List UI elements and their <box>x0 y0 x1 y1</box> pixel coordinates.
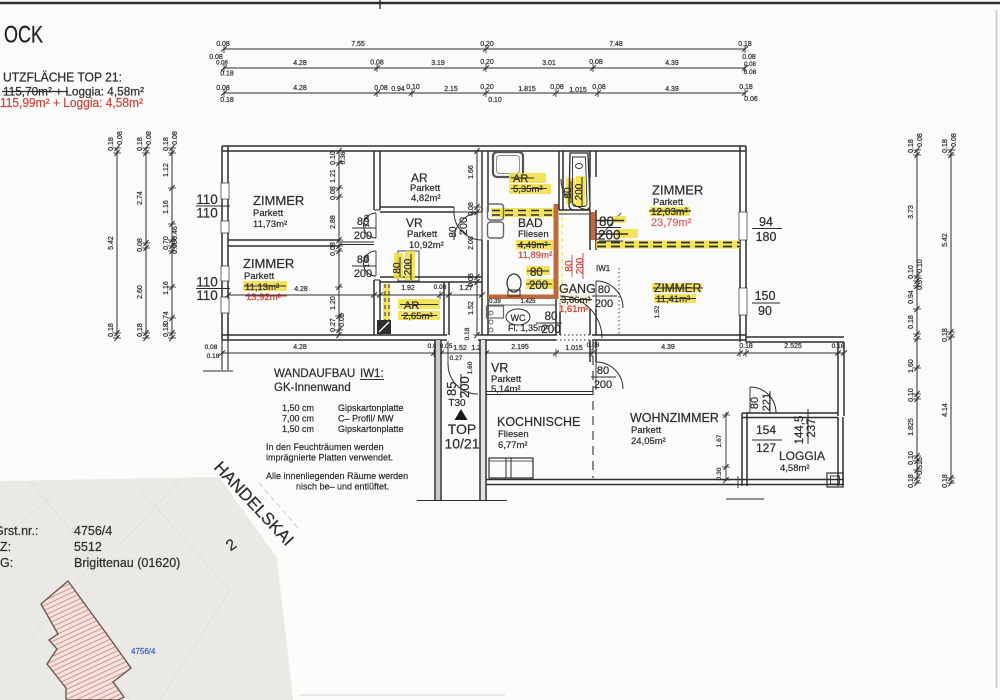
svg-text:0.08: 0.08 <box>550 84 564 91</box>
svg-text:6,77m²: 6,77m² <box>498 440 528 451</box>
svg-text:11,89m²: 11,89m² <box>518 250 552 261</box>
svg-text:In den Feuchträumen werden: In den Feuchträumen werden <box>266 442 384 452</box>
svg-text:0.18: 0.18 <box>942 139 949 153</box>
svg-text:0.08: 0.08 <box>744 69 757 76</box>
svg-text:221: 221 <box>761 393 773 411</box>
svg-text:1.015: 1.015 <box>569 87 587 94</box>
svg-text:0.08: 0.08 <box>370 60 384 67</box>
svg-text:0.08: 0.08 <box>374 85 388 92</box>
svg-text:5.42: 5.42 <box>108 236 115 250</box>
svg-text:3.19: 3.19 <box>431 60 445 67</box>
svg-text:Gipskartonplatte: Gipskartonplatte <box>338 424 404 434</box>
svg-text:0.94: 0.94 <box>391 86 405 93</box>
svg-text:0.70: 0.70 <box>163 236 170 250</box>
svg-text:0.57: 0.57 <box>917 276 924 290</box>
svg-text:80: 80 <box>564 260 575 272</box>
svg-text:0.18: 0.18 <box>220 71 234 78</box>
svg-text:0.08: 0.08 <box>330 242 337 256</box>
svg-text:144,5: 144,5 <box>794 416 806 445</box>
svg-text:0.08: 0.08 <box>742 54 756 61</box>
svg-text:0.10: 0.10 <box>908 388 915 402</box>
svg-text:1,61m²: 1,61m² <box>559 304 589 315</box>
svg-text:7,00 cm: 7,00 cm <box>282 414 314 424</box>
svg-text:1.20: 1.20 <box>330 296 337 310</box>
svg-text:0.10: 0.10 <box>406 84 420 91</box>
svg-text:80: 80 <box>530 267 543 279</box>
svg-text:200: 200 <box>458 217 470 235</box>
svg-text:0.46: 0.46 <box>172 226 179 240</box>
svg-text:5.42: 5.42 <box>942 233 949 247</box>
svg-text:150: 150 <box>755 289 776 303</box>
svg-text:Fliesen: Fliesen <box>498 429 529 440</box>
svg-text:0.08: 0.08 <box>216 41 230 48</box>
svg-text:0.18: 0.18 <box>739 84 753 91</box>
svg-text:3.73: 3.73 <box>908 205 915 219</box>
svg-text:Gipskartonplatte: Gipskartonplatte <box>338 403 404 413</box>
svg-text:UTZFLÄCHE TOP 21:: UTZFLÄCHE TOP 21: <box>3 71 122 85</box>
svg-text:1.16: 1.16 <box>163 200 170 214</box>
svg-text:237: 237 <box>806 418 818 437</box>
svg-text:0.18: 0.18 <box>137 323 144 337</box>
svg-text:200: 200 <box>354 230 372 242</box>
svg-text:0.20: 0.20 <box>480 41 494 48</box>
svg-text:G:: G: <box>0 556 13 570</box>
svg-text:1,50 cm: 1,50 cm <box>282 403 314 413</box>
svg-text:0.08: 0.08 <box>434 284 447 291</box>
svg-text:C– Profil/ MW: C– Profil/ MW <box>338 414 394 424</box>
svg-text:200: 200 <box>594 379 612 391</box>
svg-text:1,50 cm: 1,50 cm <box>282 424 314 434</box>
svg-text:4,82m²: 4,82m² <box>411 193 441 204</box>
svg-text:0.08: 0.08 <box>468 273 475 287</box>
svg-text:0.27: 0.27 <box>450 355 463 362</box>
svg-text:0.18: 0.18 <box>738 41 752 48</box>
svg-text:0.18: 0.18 <box>908 474 915 488</box>
svg-text:0.08: 0.08 <box>744 62 756 68</box>
svg-text:1.60: 1.60 <box>364 254 371 267</box>
svg-text:1.21: 1.21 <box>330 169 337 183</box>
svg-text:0.08: 0.08 <box>951 133 958 147</box>
svg-text:24,05m²: 24,05m² <box>631 436 666 447</box>
svg-text:154: 154 <box>756 423 776 437</box>
svg-text:0.515: 0.515 <box>917 457 924 475</box>
svg-text:80: 80 <box>597 365 609 377</box>
svg-text:10/21: 10/21 <box>444 436 479 452</box>
svg-text:1.92: 1.92 <box>401 285 415 292</box>
svg-text:200: 200 <box>574 183 585 200</box>
svg-text:0.30: 0.30 <box>716 467 723 480</box>
svg-text:ZIMMER: ZIMMER <box>253 193 304 208</box>
svg-text:1.52: 1.52 <box>468 301 475 315</box>
svg-text:3.01: 3.01 <box>542 60 556 67</box>
svg-text:0.18: 0.18 <box>137 137 144 151</box>
svg-text:1.67: 1.67 <box>716 434 723 447</box>
svg-text:0.06: 0.06 <box>744 96 758 103</box>
svg-text:WOHNZIMMER: WOHNZIMMER <box>630 411 719 425</box>
svg-text:Brigittenau (01620): Brigittenau (01620) <box>74 556 180 570</box>
svg-text:0.08: 0.08 <box>216 61 228 67</box>
svg-text:0.18: 0.18 <box>163 323 170 337</box>
svg-text:0.08: 0.08 <box>137 238 144 252</box>
svg-text:11,73m²: 11,73m² <box>253 219 287 230</box>
svg-text:2.195: 2.195 <box>511 344 529 351</box>
svg-text:0.08: 0.08 <box>172 240 179 254</box>
svg-text:1.52: 1.52 <box>654 305 661 318</box>
svg-text:WC: WC <box>511 313 526 323</box>
svg-text:2.60: 2.60 <box>137 285 144 299</box>
svg-text:200: 200 <box>354 268 372 280</box>
svg-text:0.08: 0.08 <box>146 131 153 145</box>
svg-text:4.28: 4.28 <box>294 286 308 293</box>
svg-text:IW1: IW1 <box>596 264 611 273</box>
svg-text:4,58m²: 4,58m² <box>780 463 810 474</box>
svg-text:80: 80 <box>545 311 558 323</box>
svg-text:0.18: 0.18 <box>942 328 949 342</box>
svg-text:Z:: Z: <box>0 540 11 554</box>
svg-text:BAD: BAD <box>518 216 543 230</box>
svg-text:LOGGIA: LOGGIA <box>779 449 825 463</box>
svg-text:4.39: 4.39 <box>665 86 679 93</box>
svg-text:200: 200 <box>575 257 586 274</box>
svg-text:VR: VR <box>491 361 508 375</box>
svg-text:1.60: 1.60 <box>467 361 474 374</box>
svg-text:200: 200 <box>595 298 613 310</box>
svg-text:1.425: 1.425 <box>520 299 536 305</box>
svg-text:Parkett: Parkett <box>631 425 661 436</box>
svg-text:11,41m²: 11,41m² <box>656 294 690 305</box>
svg-text:1.00: 1.00 <box>364 214 371 227</box>
svg-text:0.74: 0.74 <box>163 311 170 325</box>
svg-text:0.20: 0.20 <box>480 59 494 66</box>
svg-text:5,35m²: 5,35m² <box>513 184 543 195</box>
svg-text:0.18: 0.18 <box>942 474 949 488</box>
svg-text:0.08: 0.08 <box>330 186 337 200</box>
svg-text:0.18: 0.18 <box>108 323 115 337</box>
svg-text:0.10: 0.10 <box>917 259 924 273</box>
svg-text:1.16: 1.16 <box>163 281 170 295</box>
svg-text:VR: VR <box>406 216 423 230</box>
svg-text:200: 200 <box>598 228 621 243</box>
svg-text:1.825: 1.825 <box>908 418 915 436</box>
svg-text:200: 200 <box>403 258 414 275</box>
svg-text:0.08: 0.08 <box>216 85 230 92</box>
svg-text:0.18: 0.18 <box>908 139 915 153</box>
svg-text:1.015: 1.015 <box>565 345 583 352</box>
svg-text:2.88: 2.88 <box>330 215 337 229</box>
svg-text:0.08: 0.08 <box>172 131 179 145</box>
svg-text:ZIMMER: ZIMMER <box>243 256 294 271</box>
svg-text:80: 80 <box>392 262 403 274</box>
svg-text:ZIMMER: ZIMMER <box>652 183 703 198</box>
svg-text:4756/4: 4756/4 <box>131 647 156 656</box>
svg-text:90: 90 <box>758 304 772 318</box>
svg-text:0.10: 0.10 <box>908 451 915 465</box>
svg-text:0.20: 0.20 <box>480 84 494 91</box>
svg-text:0.08: 0.08 <box>468 202 475 216</box>
svg-text:0.36: 0.36 <box>340 151 347 164</box>
svg-text:nisch be– und entlüftet.: nisch be– und entlüftet. <box>296 482 389 492</box>
svg-text:127: 127 <box>756 441 776 455</box>
svg-text:180: 180 <box>756 230 777 244</box>
svg-text:5512: 5512 <box>74 540 102 554</box>
svg-text:0.05: 0.05 <box>339 313 346 327</box>
svg-text:1.66: 1.66 <box>468 165 475 179</box>
svg-text:0.18: 0.18 <box>108 137 115 151</box>
svg-text:0.10: 0.10 <box>908 265 915 279</box>
svg-text:4.39: 4.39 <box>665 60 679 67</box>
svg-text:GANG: GANG <box>559 282 596 296</box>
svg-text:4.39: 4.39 <box>661 344 675 351</box>
svg-text:80: 80 <box>749 397 761 409</box>
svg-text:4.28: 4.28 <box>293 344 307 351</box>
svg-text:2.08: 2.08 <box>468 236 475 250</box>
svg-text:80: 80 <box>598 284 610 296</box>
svg-text:0.18: 0.18 <box>832 343 845 350</box>
svg-text:WANDAUFBAU: WANDAUFBAU <box>274 368 355 380</box>
svg-text:0.08: 0.08 <box>205 344 218 351</box>
svg-text:7.48: 7.48 <box>609 41 623 48</box>
svg-text:Grst.nr.:: Grst.nr.: <box>0 524 38 538</box>
svg-text:KOCHNISCHE: KOCHNISCHE <box>497 415 580 429</box>
svg-text:0.39: 0.39 <box>489 299 501 305</box>
svg-text:Parkett: Parkett <box>244 271 274 282</box>
svg-text:2.74: 2.74 <box>137 191 144 205</box>
svg-text:4.28: 4.28 <box>293 60 307 67</box>
svg-text:0.08: 0.08 <box>592 84 606 91</box>
svg-text:0.10: 0.10 <box>330 151 337 165</box>
svg-text:13,92m²: 13,92m² <box>246 292 281 303</box>
svg-text:0.18: 0.18 <box>207 353 220 360</box>
svg-text:110: 110 <box>196 206 218 221</box>
svg-text:1.60: 1.60 <box>908 359 915 373</box>
svg-text:200: 200 <box>529 280 548 292</box>
svg-text:94: 94 <box>759 215 773 229</box>
svg-text:0.18: 0.18 <box>220 97 234 104</box>
svg-text:23,79m²: 23,79m² <box>651 217 692 229</box>
svg-text:200: 200 <box>457 376 472 398</box>
svg-text:2,65m²: 2,65m² <box>403 311 433 322</box>
svg-text:Fliesen: Fliesen <box>518 229 549 240</box>
svg-text:1.12: 1.12 <box>163 163 170 177</box>
svg-text:2.525: 2.525 <box>784 343 802 350</box>
svg-text:0.08: 0.08 <box>917 133 924 147</box>
svg-text:0.18: 0.18 <box>908 315 915 329</box>
svg-text:2.15: 2.15 <box>444 86 458 93</box>
svg-text:imprägnierte Platten verwendet: imprägnierte Platten verwendet. <box>266 453 393 463</box>
svg-text:0.18: 0.18 <box>163 137 170 151</box>
svg-text:4756/4: 4756/4 <box>74 524 112 538</box>
svg-text:5,14m²: 5,14m² <box>491 384 521 395</box>
svg-text:110: 110 <box>196 288 218 303</box>
svg-text:4.14: 4.14 <box>942 403 949 417</box>
svg-text:4.28: 4.28 <box>293 85 307 92</box>
svg-text:IW1:: IW1: <box>360 368 384 380</box>
svg-text:0.10: 0.10 <box>488 97 502 104</box>
svg-text:OCK: OCK <box>4 22 43 49</box>
svg-text:T30: T30 <box>448 398 466 409</box>
svg-text:Alle innenliegenden Räume werd: Alle innenliegenden Räume werden <box>266 471 408 481</box>
svg-text:0.18: 0.18 <box>739 343 753 350</box>
svg-text:1.52: 1.52 <box>453 345 467 352</box>
svg-text:GK-Innenwand: GK-Innenwand <box>274 382 351 394</box>
svg-text:Parkett: Parkett <box>407 229 437 240</box>
svg-text:Parkett: Parkett <box>253 208 283 219</box>
svg-text:115,99m² + Loggia: 4,58m²: 115,99m² + Loggia: 4,58m² <box>0 96 143 110</box>
svg-text:0.08: 0.08 <box>589 59 603 66</box>
svg-text:0.27: 0.27 <box>330 318 337 332</box>
svg-text:0.18: 0.18 <box>464 327 471 340</box>
svg-text:1.815: 1.815 <box>518 86 536 93</box>
svg-text:10,92m²: 10,92m² <box>409 240 444 251</box>
svg-text:0.94: 0.94 <box>908 290 915 304</box>
svg-text:200: 200 <box>541 324 560 336</box>
svg-text:7.55: 7.55 <box>351 41 365 48</box>
svg-text:0.08: 0.08 <box>117 131 124 145</box>
